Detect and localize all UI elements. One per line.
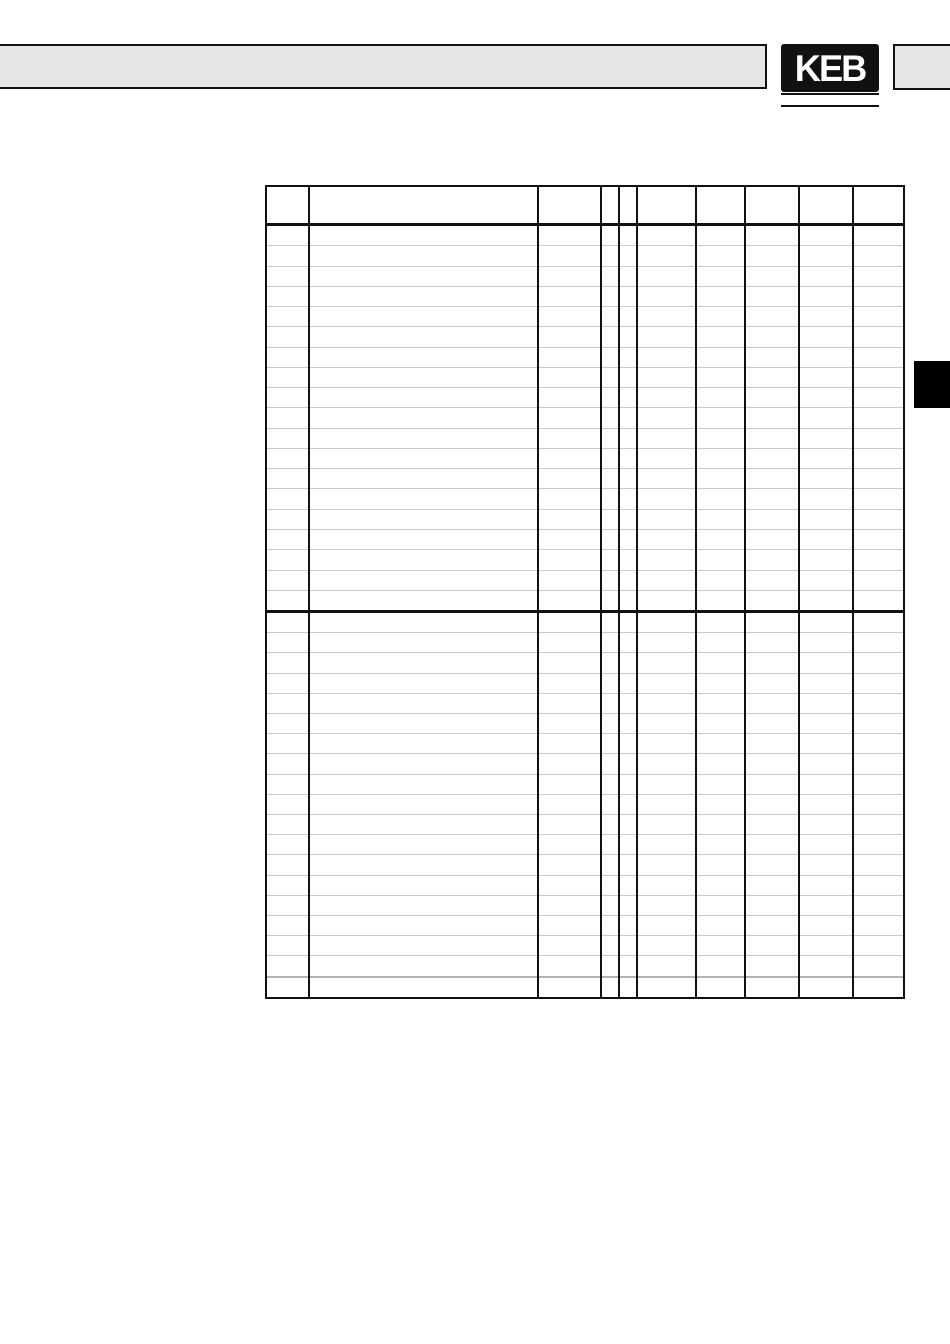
- header-band: [0, 44, 767, 89]
- table-row: [267, 408, 903, 428]
- table-row: [267, 489, 903, 509]
- column-divider: [618, 187, 620, 997]
- table-row: [267, 916, 903, 936]
- chapter-index-tab: [914, 361, 950, 408]
- table-row: [267, 429, 903, 449]
- column-divider: [744, 187, 746, 997]
- table-section: [267, 613, 903, 997]
- column-divider: [636, 187, 638, 997]
- table-row: [267, 876, 903, 896]
- keb-logo-text: KEB: [795, 50, 866, 87]
- table-row: [267, 510, 903, 530]
- table-row: [267, 734, 903, 754]
- table-row: [267, 226, 903, 246]
- table-row: [267, 835, 903, 855]
- table-row: [267, 246, 903, 266]
- table-row: [267, 674, 903, 694]
- column-divider: [852, 187, 854, 997]
- table-row: [267, 815, 903, 835]
- page: KEB: [0, 0, 950, 1344]
- table-row: [267, 368, 903, 388]
- header-right-box: [893, 44, 950, 90]
- table-row: [267, 956, 903, 977]
- table-row: [267, 287, 903, 307]
- table-row: [267, 307, 903, 327]
- table-row: [267, 775, 903, 795]
- table-row: [267, 795, 903, 815]
- table-row: [267, 754, 903, 774]
- table-row: [267, 653, 903, 673]
- table-row: [267, 896, 903, 916]
- table-row: [267, 348, 903, 368]
- column-divider: [798, 187, 800, 997]
- column-divider: [695, 187, 697, 997]
- logo-underline-primary: [781, 93, 879, 95]
- table-row: [267, 469, 903, 489]
- table-section: [267, 226, 903, 613]
- parameter-table: [265, 185, 905, 999]
- table-row: [267, 571, 903, 591]
- table-row: [267, 388, 903, 408]
- column-divider: [537, 187, 539, 997]
- logo-underline-secondary: [781, 105, 879, 107]
- table-row: [267, 978, 903, 997]
- table-row: [267, 694, 903, 714]
- table-row: [267, 633, 903, 653]
- keb-logo: KEB: [781, 44, 879, 92]
- table-row: [267, 613, 903, 633]
- table-row: [267, 591, 903, 610]
- column-divider: [600, 187, 602, 997]
- table-row: [267, 267, 903, 287]
- column-divider: [308, 187, 310, 997]
- table-row: [267, 530, 903, 550]
- table-row: [267, 550, 903, 570]
- table-row: [267, 327, 903, 347]
- table-row: [267, 855, 903, 875]
- table-row: [267, 449, 903, 469]
- table-row: [267, 936, 903, 956]
- table-row: [267, 714, 903, 734]
- table-header-row: [267, 187, 903, 226]
